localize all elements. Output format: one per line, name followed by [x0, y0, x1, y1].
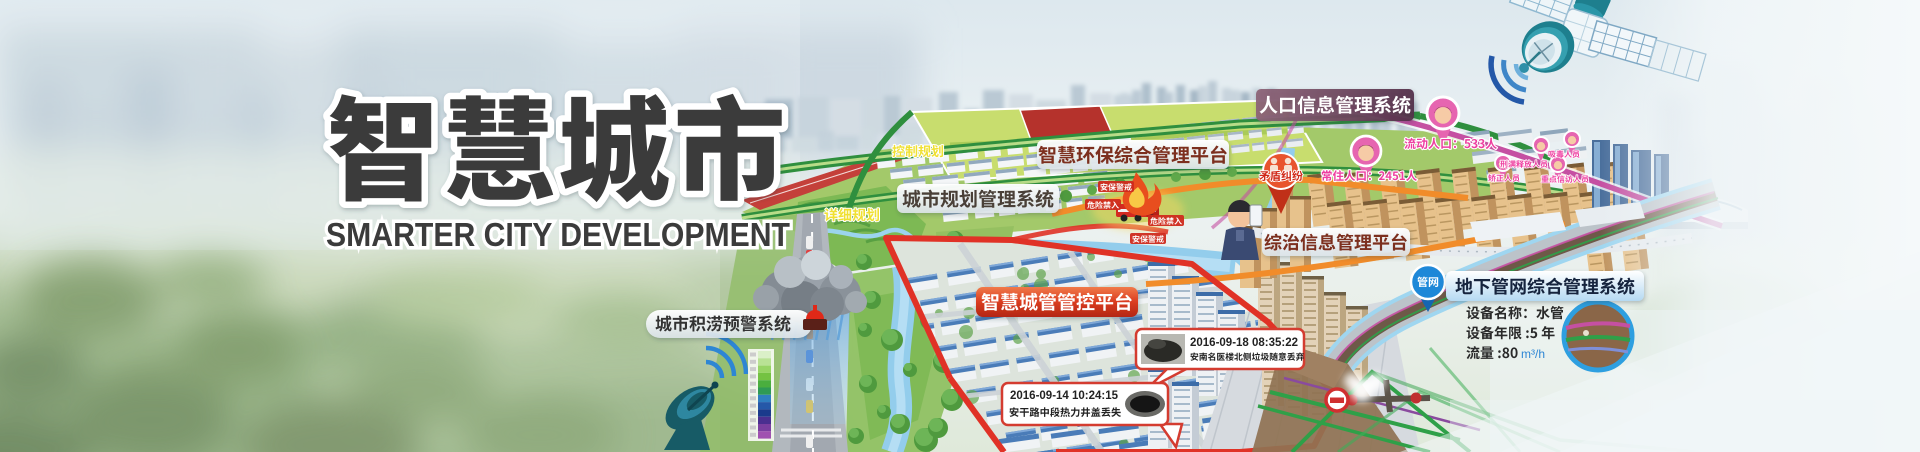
- svg-text:2016-09-14 10:24:15: 2016-09-14 10:24:15: [1010, 390, 1119, 402]
- svg-text:2016-09-18 08:35:22: 2016-09-18 08:35:22: [1190, 337, 1298, 349]
- svg-text:m³/h: m³/h: [1521, 347, 1545, 361]
- svg-text:SMARTER CITY DEVELOPMENT: SMARTER CITY DEVELOPMENT: [326, 216, 790, 253]
